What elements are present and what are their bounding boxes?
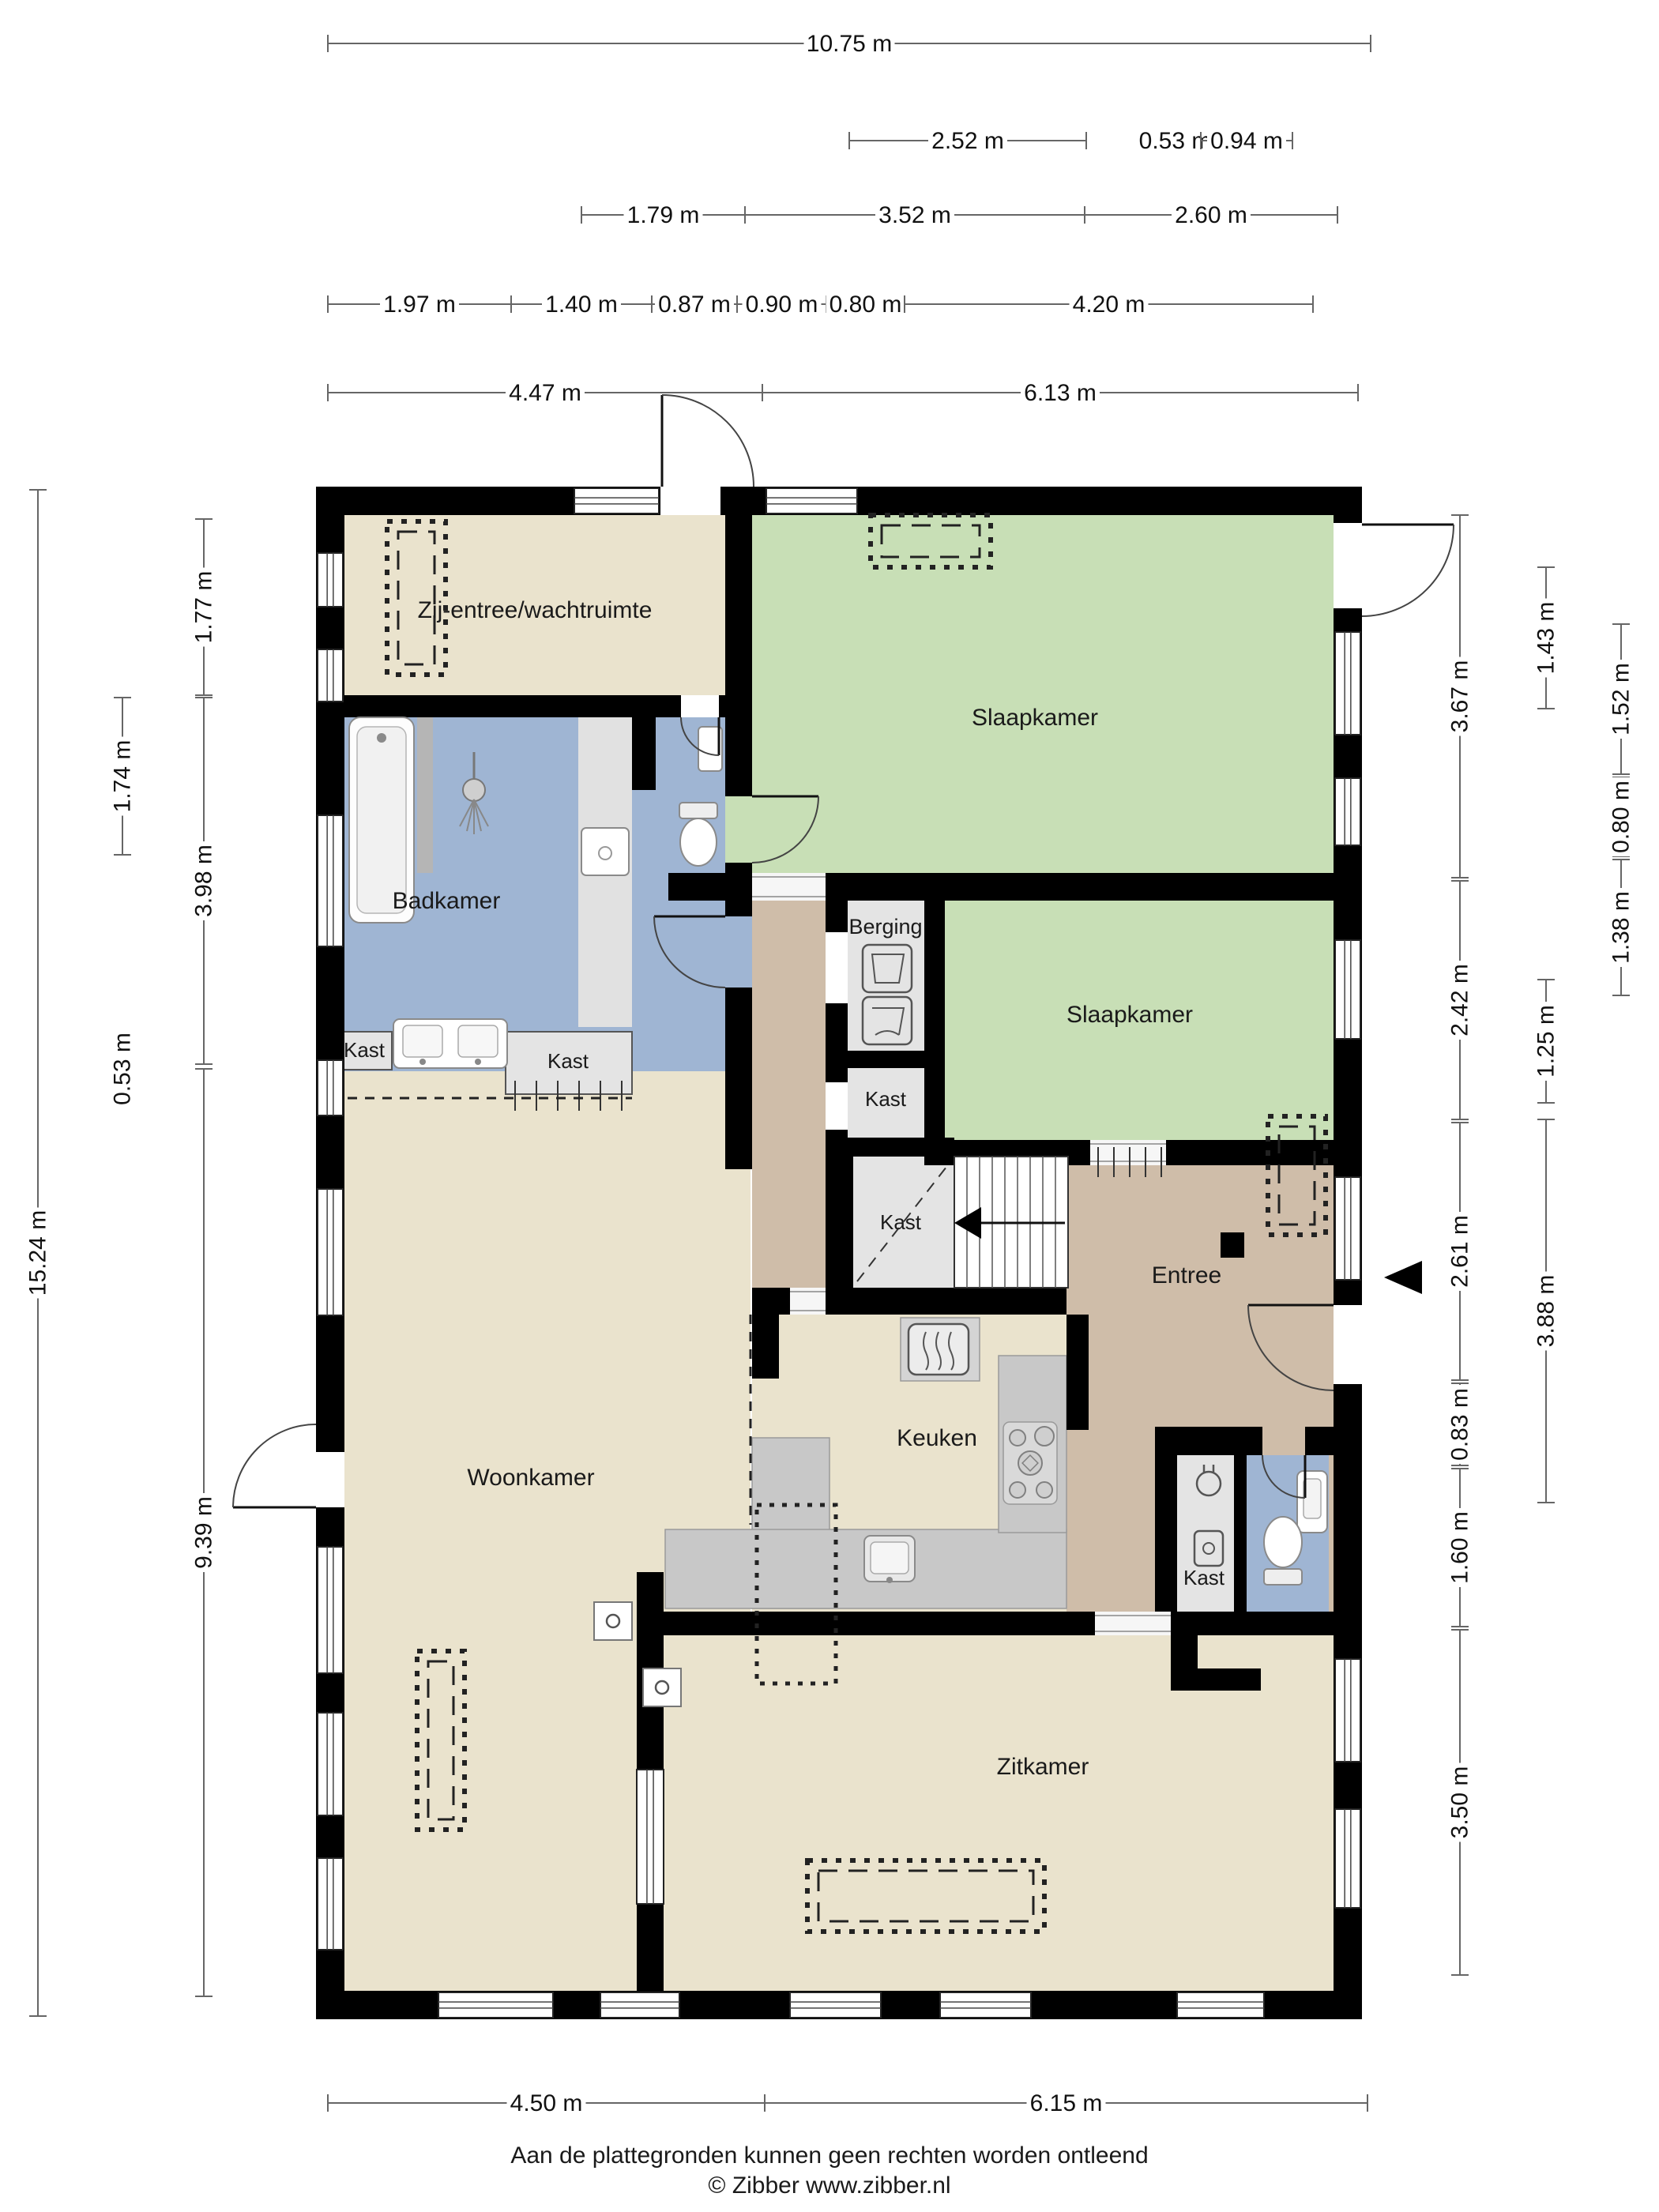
dim-label-h: 0.87 m [658,292,731,318]
window-right-wall [1335,940,1360,1039]
dim-label-h: 4.50 m [510,2090,583,2116]
dim-label-h: 3.52 m [878,202,951,228]
window-left-wall [318,649,343,702]
wall [826,1157,853,1288]
wall [826,1003,848,1082]
window-left-wall [318,1547,343,1673]
vanity-tap [475,1059,481,1065]
dim-label-h: 2.52 m [931,128,1004,154]
room-label-kast-bad-l: Kast [344,1038,386,1062]
dim-label-v: 3.98 m [191,845,217,917]
window-left-wall [318,1189,343,1315]
toilet-tank [679,803,717,818]
wall [344,695,681,717]
room-label-kast-stairs: Kast [880,1210,922,1234]
dim-label-v: 2.61 m [1447,1215,1473,1288]
room-label-berging: Berging [848,915,922,939]
kitchen-sink-tap [886,1577,893,1583]
vanity-basin [458,1025,498,1057]
window-left-wall [318,1858,343,1950]
window-bottom-wall [940,1992,1031,2018]
room-label-keuken: Keuken [897,1425,977,1451]
dim-label-v: 3.50 m [1447,1766,1473,1839]
hob-icon [1010,1482,1025,1498]
window-bottom-wall [1177,1992,1264,2018]
wall [1221,1232,1244,1258]
window-bottom-wall [600,1992,679,2018]
door-left-exterior-arc [233,1424,316,1507]
kitchen-sink-basin [871,1542,908,1574]
wall [752,1288,790,1315]
door-gap-side-entrance [660,487,720,515]
floor-outlet-icon [643,1668,681,1706]
dim-label-v: 1.74 m [110,740,136,813]
wall [848,1051,924,1068]
dim-label-v: 1.77 m [191,571,217,644]
wall [719,695,725,717]
window-top-wall [766,488,857,513]
window-left-wall [318,1713,343,1815]
wall [924,901,945,1140]
wall [725,515,752,796]
dim-label-v: 1.43 m [1533,602,1559,675]
wall [1305,1427,1334,1455]
window-bottom-wall [790,1992,881,2018]
window-left-wall [318,815,343,946]
dim-label-h: 1.40 m [545,292,618,318]
shower-icon [463,779,485,801]
wall [1171,1668,1261,1691]
floorplan-canvas: Zij-entree/wachtruimteSlaapkamerBadkamer… [0,0,1659,2212]
dim-label-v: 0.80 m [1608,781,1635,853]
dim-label-v: 0.53 m [110,1033,136,1105]
window-bottom-wall [438,1992,553,2018]
wall [1171,1612,1334,1635]
floor-outlet-icon [594,1602,632,1640]
dim-label-v: 15.24 m [25,1210,51,1296]
dim-label-h: 10.75 m [807,31,892,57]
dim-label-h: 0.94 m [1210,128,1283,154]
wall [637,1612,1095,1635]
window-right-wall [1335,1659,1360,1762]
dim-label-h: 4.47 m [509,380,581,406]
wall [752,1315,779,1379]
window-right-wall [1335,1177,1360,1280]
window-right-wall [1335,778,1360,845]
wall [637,1904,664,1991]
copyright-text: © Zibber www.zibber.nl [0,2172,1659,2199]
dim-label-v: 1.60 m [1447,1511,1473,1584]
room-label-kast-center: Kast [865,1087,907,1111]
window-right-wall [1335,632,1360,735]
window-top-wall [574,488,659,513]
toilet-tank [1264,1569,1302,1585]
wall [1234,1455,1247,1612]
dim-label-h: 6.13 m [1024,380,1097,406]
wall [1155,1455,1177,1612]
room-label-zitkamer: Zitkamer [997,1754,1089,1780]
dim-label-h: 6.15 m [1030,2090,1103,2116]
wall [826,873,1334,901]
bathtub-faucet [377,733,386,743]
wall [826,901,848,932]
window-right-wall [1335,1809,1360,1908]
dim-label-v: 1.52 m [1608,663,1635,735]
dim-label-h: 0.90 m [746,292,818,318]
disclaimer-text: Aan de plattegronden kunnen geen rechten… [0,2142,1659,2169]
door-gap-right-top [1334,523,1362,608]
floorplan-drawing: Zij-entree/wachtruimteSlaapkamerBadkamer… [0,0,1659,2212]
door-gap-left-wall [316,1452,344,1507]
room-label-woonkamer: Woonkamer [467,1465,594,1491]
room-label-zij-entree: Zij-entree/wachtruimte [418,597,653,623]
door-gap-front-door [1334,1305,1362,1384]
wall [826,1288,1066,1315]
wall [632,702,656,790]
washbasin-icon [581,828,629,875]
dim-label-h: 4.20 m [1073,292,1145,318]
hob-icon [1010,1430,1025,1446]
entrance-arrow-icon [1384,1261,1422,1294]
wall [668,873,752,901]
floor-door-patch-2 [725,916,752,987]
door-gap-toilet-1 [681,695,719,717]
room-label-badkamer: Badkamer [393,888,501,914]
toilet-icon [1264,1517,1302,1567]
dim-label-h: 1.79 m [627,202,700,228]
floor-slaapkamer-1 [752,515,1334,873]
dim-label-h: 0.80 m [829,292,902,318]
room-label-kast-bad-r: Kast [547,1049,589,1073]
dim-label-v: 9.39 m [191,1496,217,1569]
bathtub-inner [357,727,406,913]
hob-icon [1035,1427,1054,1446]
room-label-slaapkamer-1: Slaapkamer [972,705,1098,731]
shower-divider-wall [417,717,433,873]
wall [826,1130,848,1157]
dim-label-v: 3.67 m [1447,660,1473,733]
room-label-entree: Entree [1152,1262,1221,1288]
dim-label-v: 2.42 m [1447,964,1473,1036]
room-label-kast-meter: Kast [1183,1566,1225,1589]
door-side-entrance-arc [662,395,754,487]
wall [1066,1315,1089,1430]
vanity-basin [403,1025,442,1057]
wall [1166,1140,1334,1165]
dim-label-v: 0.83 m [1447,1388,1473,1461]
hob-icon [1036,1482,1052,1498]
room-label-slaapkamer-2: Slaapkamer [1066,1002,1193,1028]
dim-label-v: 1.25 m [1533,1005,1559,1078]
floor-door-patch-1 [725,796,752,863]
dim-label-h: 1.97 m [383,292,456,318]
dim-label-v: 1.38 m [1608,891,1635,964]
window-left-wall [318,1060,343,1115]
wall [725,987,752,1169]
boiler-icon [908,1324,969,1375]
dim-label-v: 3.88 m [1533,1275,1559,1348]
wall [1155,1427,1262,1455]
glazed-partition [637,1770,664,1904]
toilet-icon [680,818,717,866]
door-right-exterior-arc [1362,525,1454,616]
floor-corridor [752,901,826,1288]
window-left-wall [318,553,343,607]
dim-label-h: 2.60 m [1175,202,1247,228]
vanity-tap [419,1059,426,1065]
